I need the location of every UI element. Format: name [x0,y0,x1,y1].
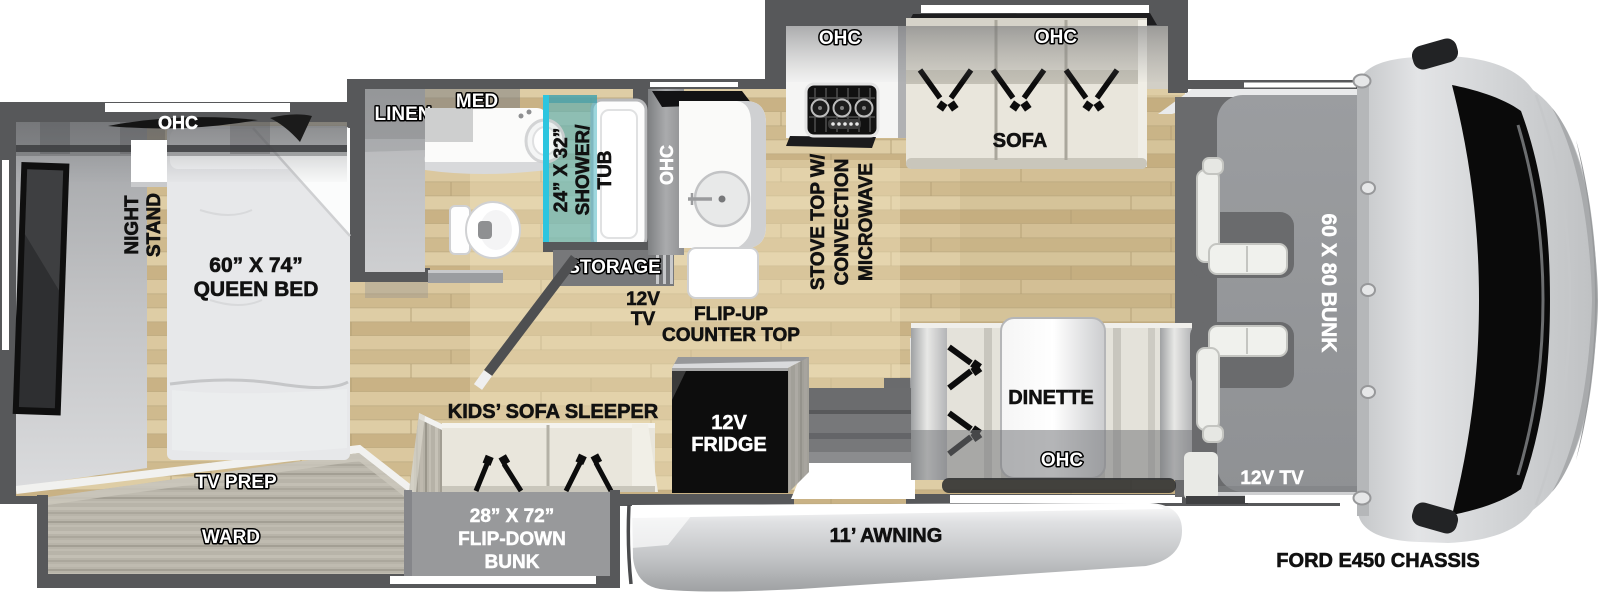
svg-text:MICROWAVE: MICROWAVE [856,163,877,281]
svg-text:TV PREP: TV PREP [195,472,277,493]
svg-text:QUEEN BED: QUEEN BED [194,278,319,301]
svg-text:SHOWER/: SHOWER/ [573,124,594,216]
svg-text:BUNK: BUNK [485,552,540,573]
svg-text:LINEN: LINEN [375,104,432,125]
svg-text:60 X 80 BUNK: 60 X 80 BUNK [1317,214,1340,353]
svg-text:COUNTER TOP: COUNTER TOP [662,325,800,346]
svg-text:MED: MED [456,91,498,112]
svg-text:OHC: OHC [158,113,198,133]
svg-text:OHC: OHC [657,145,677,185]
svg-text:TV: TV [631,309,656,330]
svg-text:24” X 32”: 24” X 32” [551,128,572,213]
svg-text:28” X 72”: 28” X 72” [470,506,555,527]
svg-text:STORAGE: STORAGE [567,257,661,278]
svg-text:FLIP-DOWN: FLIP-DOWN [458,529,566,550]
svg-text:11’ AWNING: 11’ AWNING [830,525,943,547]
svg-text:WARD: WARD [202,527,260,548]
svg-text:STAND: STAND [144,193,165,257]
svg-text:FRIDGE: FRIDGE [691,434,767,456]
svg-text:OHC: OHC [1035,27,1078,48]
svg-text:DINETTE: DINETTE [1008,387,1094,409]
svg-text:FORD E450 CHASSIS: FORD E450 CHASSIS [1276,550,1479,572]
svg-text:OHC: OHC [819,28,862,49]
svg-text:12V TV: 12V TV [1240,468,1304,489]
svg-text:OHC: OHC [1041,450,1084,471]
svg-text:SOFA: SOFA [993,130,1047,152]
svg-text:STOVE TOP W/: STOVE TOP W/ [808,153,829,290]
svg-text:NIGHT: NIGHT [122,195,143,255]
svg-text:12V: 12V [711,412,747,434]
svg-text:12V: 12V [626,289,660,310]
svg-text:TUB: TUB [595,150,616,189]
svg-text:CONVECTION: CONVECTION [832,159,853,286]
svg-text:60” X 74”: 60” X 74” [209,254,302,277]
svg-text:FLIP-UP: FLIP-UP [694,304,768,325]
svg-text:KIDS’ SOFA SLEEPER: KIDS’ SOFA SLEEPER [448,401,659,423]
